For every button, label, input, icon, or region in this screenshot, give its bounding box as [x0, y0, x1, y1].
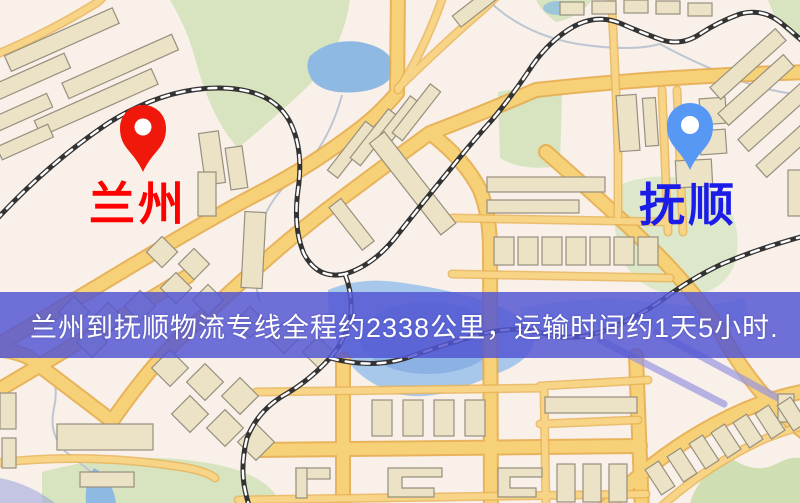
map-canvas: 兰州 抚顺 — [0, 0, 800, 503]
origin-label: 兰州 — [89, 178, 187, 230]
route-info-banner: 兰州到抚顺物流专线全程约2338公里，运输时间约1天5小时. — [0, 292, 800, 358]
pin-hole — [681, 116, 699, 134]
route-info-text: 兰州到抚顺物流专线全程约2338公里，运输时间约1天5小时. — [30, 306, 779, 345]
destination-label: 抚顺 — [639, 179, 737, 231]
map-view: 兰州 抚顺 兰州到抚顺物流专线全程约2338公里，运输时间约1天5小时. — [0, 0, 800, 503]
pin-hole — [135, 119, 152, 136]
